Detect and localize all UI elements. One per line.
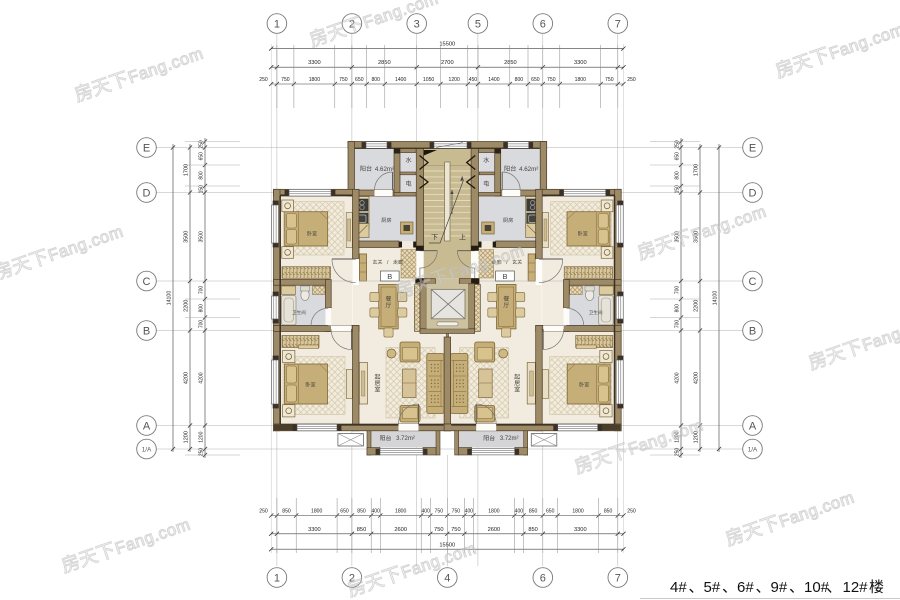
svg-text:7: 7 — [615, 18, 621, 30]
svg-text:700: 700 — [198, 286, 204, 295]
svg-text:2200: 2200 — [693, 300, 699, 312]
svg-text:650: 650 — [674, 152, 680, 161]
svg-text:800: 800 — [674, 171, 680, 180]
svg-text:B: B — [502, 272, 507, 281]
svg-text:800: 800 — [198, 304, 204, 313]
svg-text:D: D — [749, 187, 757, 199]
svg-text:750: 750 — [281, 77, 290, 83]
svg-text:850: 850 — [604, 509, 613, 515]
svg-text:1400: 1400 — [395, 77, 406, 83]
svg-text:250: 250 — [627, 77, 636, 83]
svg-text:14100: 14100 — [712, 291, 718, 306]
svg-text:15500: 15500 — [439, 42, 455, 48]
svg-text:2600: 2600 — [488, 527, 501, 533]
svg-text:750: 750 — [435, 509, 444, 515]
svg-text:650: 650 — [198, 152, 204, 161]
svg-text:1800: 1800 — [572, 509, 583, 515]
svg-text:B: B — [387, 272, 392, 281]
svg-text:3500: 3500 — [198, 231, 204, 242]
svg-text:5#: 5# — [704, 579, 721, 596]
svg-text:1: 1 — [274, 18, 280, 30]
svg-text:400: 400 — [465, 509, 474, 515]
svg-text:1400: 1400 — [488, 77, 499, 83]
svg-text:250: 250 — [627, 509, 636, 515]
svg-text:1800: 1800 — [575, 77, 586, 83]
svg-text:6#: 6# — [737, 579, 754, 596]
svg-text:750: 750 — [452, 509, 461, 515]
svg-text:1800: 1800 — [311, 509, 322, 515]
svg-text:D: D — [143, 187, 151, 199]
svg-text:800: 800 — [674, 304, 680, 313]
svg-text:800: 800 — [371, 77, 380, 83]
svg-text:1800: 1800 — [309, 77, 320, 83]
svg-text:650: 650 — [340, 509, 349, 515]
svg-text:1700: 1700 — [693, 164, 699, 176]
svg-text:4: 4 — [444, 572, 450, 584]
svg-text:1700: 1700 — [183, 164, 189, 176]
svg-text:9#: 9# — [771, 579, 788, 596]
svg-text:400: 400 — [421, 509, 430, 515]
svg-text:4.62m²: 4.62m² — [375, 166, 394, 173]
svg-text:1200: 1200 — [198, 431, 204, 442]
svg-text:6: 6 — [540, 18, 546, 30]
svg-text:1050: 1050 — [423, 77, 434, 83]
svg-text:2850: 2850 — [504, 60, 517, 66]
svg-text:3300: 3300 — [574, 527, 587, 533]
svg-text:850: 850 — [357, 509, 366, 515]
svg-text:4200: 4200 — [693, 372, 699, 384]
svg-text:650: 650 — [531, 77, 540, 83]
svg-text:7: 7 — [615, 572, 621, 584]
svg-text:800: 800 — [515, 77, 524, 83]
svg-text:4200: 4200 — [674, 372, 680, 383]
svg-text:450: 450 — [469, 77, 478, 83]
svg-text:C: C — [749, 276, 757, 288]
svg-text:3300: 3300 — [308, 60, 321, 66]
svg-text:E: E — [749, 142, 756, 154]
svg-text:850: 850 — [528, 527, 538, 533]
svg-text:700: 700 — [674, 320, 680, 329]
svg-text:1: 1 — [274, 572, 280, 584]
svg-text:1200: 1200 — [183, 431, 189, 443]
svg-text:1/A: 1/A — [142, 447, 152, 454]
svg-text:A: A — [749, 420, 757, 432]
svg-text:3500: 3500 — [183, 231, 189, 243]
svg-text:750: 750 — [605, 77, 614, 83]
svg-text:750: 750 — [339, 77, 348, 83]
svg-text:4.62m²: 4.62m² — [519, 166, 538, 173]
svg-text:14100: 14100 — [166, 291, 172, 306]
svg-text:3.72m²: 3.72m² — [396, 436, 415, 442]
svg-text:700: 700 — [198, 320, 204, 329]
svg-text:400: 400 — [371, 509, 380, 515]
svg-text:1200: 1200 — [449, 77, 460, 83]
svg-text:2600: 2600 — [394, 527, 407, 533]
svg-text:1800: 1800 — [488, 509, 499, 515]
svg-text:3300: 3300 — [308, 527, 321, 533]
svg-text:650: 650 — [355, 77, 364, 83]
svg-text:750: 750 — [547, 77, 556, 83]
svg-text:1/A: 1/A — [748, 447, 758, 454]
svg-text:4200: 4200 — [198, 372, 204, 383]
svg-text:B: B — [749, 325, 756, 337]
svg-text:850: 850 — [529, 509, 538, 515]
svg-text:750: 750 — [434, 527, 444, 533]
svg-text:750: 750 — [451, 527, 461, 533]
svg-text:3: 3 — [414, 18, 420, 30]
svg-text:800: 800 — [198, 171, 204, 180]
svg-text:12#: 12# — [843, 579, 869, 596]
svg-text:A: A — [143, 420, 151, 432]
svg-text:250: 250 — [259, 509, 268, 515]
svg-text:4#: 4# — [670, 579, 687, 596]
svg-text:10#: 10# — [804, 579, 830, 596]
svg-text:400: 400 — [515, 509, 524, 515]
svg-text:700: 700 — [674, 286, 680, 295]
svg-text:C: C — [143, 276, 151, 288]
svg-text:E: E — [143, 142, 150, 154]
svg-text:2850: 2850 — [378, 60, 391, 66]
svg-text:850: 850 — [357, 527, 367, 533]
svg-text:B: B — [143, 325, 150, 337]
svg-text:250: 250 — [259, 77, 268, 83]
svg-text:4200: 4200 — [183, 372, 189, 384]
svg-text:1800: 1800 — [395, 509, 406, 515]
svg-text:3300: 3300 — [574, 60, 587, 66]
svg-text:2200: 2200 — [183, 300, 189, 312]
svg-text:3.72m²: 3.72m² — [500, 436, 519, 442]
svg-text:850: 850 — [282, 509, 291, 515]
svg-text:650: 650 — [546, 509, 555, 515]
svg-text:5: 5 — [475, 18, 481, 30]
svg-text:6: 6 — [540, 572, 546, 584]
svg-text:2700: 2700 — [441, 60, 454, 66]
